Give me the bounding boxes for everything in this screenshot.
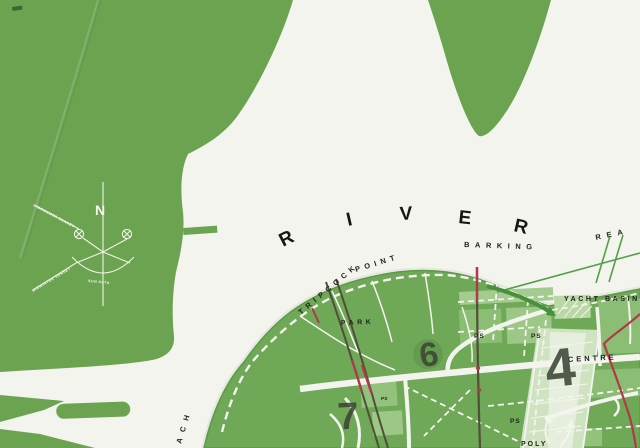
district-number-4: 4 xyxy=(542,337,578,400)
ps-label: PS xyxy=(531,333,542,340)
map-canvas: R I V E R BARKING REA ACH TRIPCOCK POINT… xyxy=(0,0,640,448)
ps-label: PS xyxy=(474,333,485,340)
yacht-basin-label: YACHT BASIN xyxy=(564,296,640,303)
crimson-node xyxy=(477,388,481,392)
ps-label-small: PS xyxy=(381,396,388,402)
river-letter: V xyxy=(399,203,413,225)
parcel xyxy=(372,410,403,436)
map-frame: R I V E R BARKING REA ACH TRIPCOCK POINT… xyxy=(0,0,640,448)
poly-label: POLY xyxy=(521,441,547,448)
crimson-node xyxy=(476,366,480,370)
north-label: N xyxy=(95,202,105,218)
river-letter: E xyxy=(457,207,472,229)
pier xyxy=(56,401,130,419)
ps-label: PS xyxy=(510,418,521,425)
park-label: PARK xyxy=(341,319,375,327)
district-number-7: 7 xyxy=(336,395,359,438)
